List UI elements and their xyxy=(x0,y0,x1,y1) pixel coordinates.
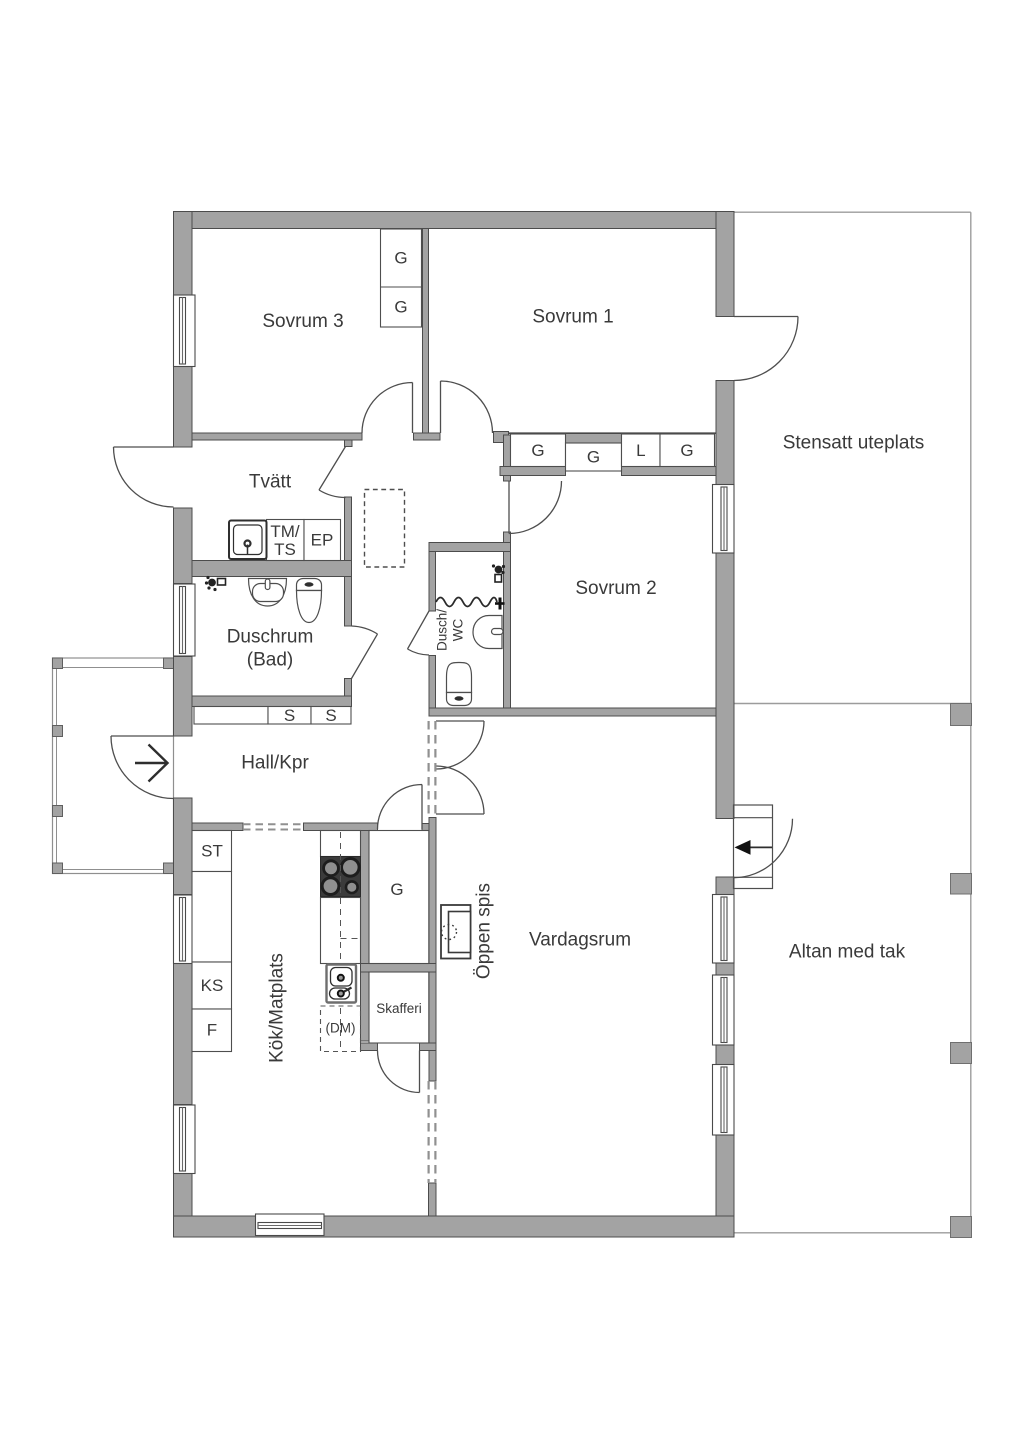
svg-text:Altan med tak: Altan med tak xyxy=(789,942,906,963)
svg-text:TS: TS xyxy=(274,540,296,559)
svg-text:Hall/Kpr: Hall/Kpr xyxy=(241,753,309,774)
svg-text:Stensatt uteplats: Stensatt uteplats xyxy=(783,433,925,454)
svg-text:G: G xyxy=(390,880,403,899)
svg-text:Vardagsrum: Vardagsrum xyxy=(529,930,631,951)
svg-text:S: S xyxy=(284,706,295,725)
svg-text:Tvätt: Tvätt xyxy=(249,472,292,493)
svg-text:ST: ST xyxy=(201,842,223,861)
svg-text:G: G xyxy=(531,441,544,460)
svg-text:G: G xyxy=(680,441,693,460)
svg-text:F: F xyxy=(207,1021,217,1040)
svg-text:(Bad): (Bad) xyxy=(247,650,293,671)
svg-text:Kök/Matplats: Kök/Matplats xyxy=(267,953,288,1063)
svg-text:Sovrum 3: Sovrum 3 xyxy=(262,311,343,332)
svg-text:KS: KS xyxy=(201,976,224,995)
svg-text:L: L xyxy=(636,441,645,460)
svg-text:Sovrum 1: Sovrum 1 xyxy=(532,307,613,328)
svg-text:EP: EP xyxy=(311,531,334,550)
svg-text:(DM): (DM) xyxy=(326,1021,356,1036)
svg-text:Duschrum: Duschrum xyxy=(227,627,314,648)
svg-text:G: G xyxy=(394,298,407,317)
svg-text:G: G xyxy=(587,448,600,467)
svg-text:G: G xyxy=(394,249,407,268)
svg-text:Öppen spis: Öppen spis xyxy=(474,883,495,979)
svg-text:Sovrum 2: Sovrum 2 xyxy=(575,578,656,599)
svg-text:Dusch/: Dusch/ xyxy=(435,609,450,651)
svg-text:S: S xyxy=(325,706,336,725)
svg-text:WC: WC xyxy=(451,619,466,642)
svg-text:Skafferi: Skafferi xyxy=(376,1001,422,1016)
svg-text:TM/: TM/ xyxy=(270,522,300,541)
